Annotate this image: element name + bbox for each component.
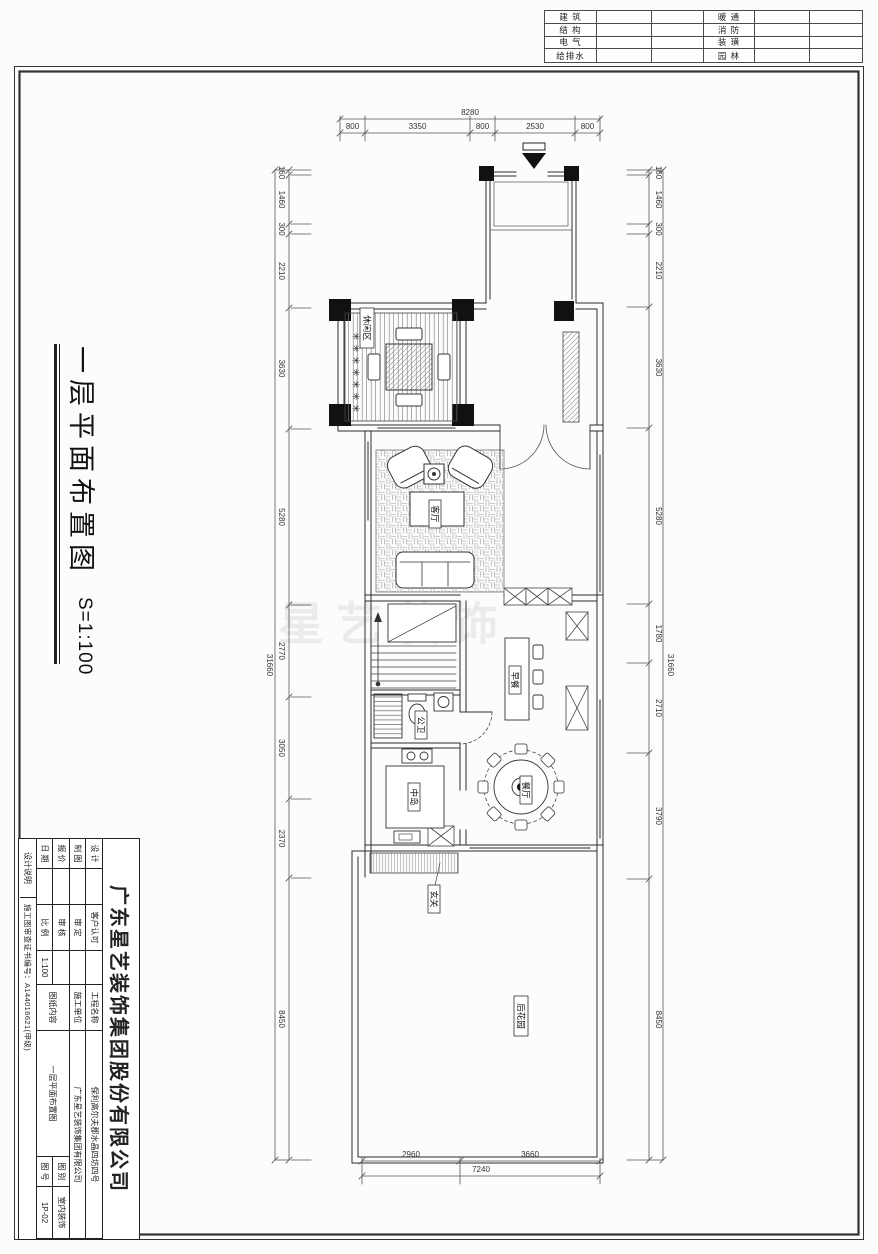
plant-symbols: ✳✳✳✳✳✳✳ bbox=[352, 332, 360, 415]
dim-label: 300 bbox=[654, 222, 663, 236]
plant-icon: ✳ bbox=[352, 380, 360, 391]
drawing-sheet: 建 筑 暖 通 结 构 消 防 电 气 装 璜 给排水 园 林 一层平面布置图 … bbox=[0, 0, 878, 1254]
stair-arrow-head bbox=[374, 612, 382, 622]
foyer-garden bbox=[370, 853, 458, 885]
dim-label: 800 bbox=[346, 122, 360, 131]
stone-wall-hatch bbox=[563, 332, 579, 422]
field-label-builder: 施工单位 bbox=[69, 985, 86, 1031]
field-value-scale: 1:100 bbox=[36, 951, 53, 985]
dimension-chain-bottom: 296036607240 bbox=[359, 1150, 603, 1184]
field-label-quote: 报 价 bbox=[53, 839, 70, 869]
field-label-approved: 审 定 bbox=[69, 905, 86, 951]
room-label-leisure: 休闲区 bbox=[362, 315, 372, 341]
powder-room bbox=[374, 693, 492, 744]
dim-label: 2770 bbox=[277, 642, 286, 660]
bar-stool bbox=[533, 695, 543, 709]
dim-label: 3790 bbox=[654, 807, 663, 825]
outdoor-chair bbox=[396, 394, 422, 406]
toilet-tank bbox=[408, 694, 426, 701]
field-value-date bbox=[36, 869, 53, 905]
dim-label: 7240 bbox=[472, 1165, 490, 1174]
bar-stool bbox=[533, 670, 543, 684]
field-label-date: 日 期 bbox=[36, 839, 53, 869]
dining-chair bbox=[515, 820, 527, 830]
field-label-checked: 审 核 bbox=[53, 905, 70, 951]
field-value-design bbox=[86, 869, 103, 905]
field-label-scale: 比 例 bbox=[36, 905, 53, 951]
cabinet bbox=[394, 831, 420, 843]
dim-label: 1460 bbox=[654, 191, 663, 209]
field-value-draft bbox=[69, 869, 86, 905]
entry-mat bbox=[370, 853, 458, 873]
bar-stool bbox=[533, 645, 543, 659]
french-door-arc bbox=[546, 425, 590, 469]
dim-label: 3630 bbox=[654, 359, 663, 377]
dim-label: 3050 bbox=[277, 739, 286, 757]
column bbox=[554, 301, 574, 321]
living-room bbox=[376, 425, 590, 592]
dim-label: 8450 bbox=[277, 1010, 286, 1028]
washer bbox=[374, 694, 402, 738]
cooktop bbox=[402, 749, 432, 763]
column bbox=[479, 166, 494, 181]
entry-marker-bar bbox=[523, 143, 545, 150]
dim-label: 800 bbox=[476, 122, 490, 131]
company-name: 广东星艺装饰集团股份有限公司 bbox=[102, 839, 139, 1239]
stair-treads bbox=[371, 646, 456, 688]
dim-label: 1780 bbox=[654, 625, 663, 643]
outdoor-table bbox=[386, 344, 432, 390]
field-value-project: 保利高尔夫郡水晶四坊四号 bbox=[86, 1031, 103, 1239]
dim-label: 160 bbox=[654, 166, 663, 180]
field-value-category: 室内装饰 bbox=[53, 1187, 70, 1239]
dim-label: 31660 bbox=[666, 654, 675, 677]
dim-label: 31660 bbox=[265, 654, 274, 677]
dim-label: 8280 bbox=[461, 108, 479, 117]
dim-label: 800 bbox=[581, 122, 595, 131]
dining-chair bbox=[554, 781, 564, 793]
plant-icon: ✳ bbox=[352, 392, 360, 403]
field-value-builder: 广东星艺装饰集团有限公司 bbox=[69, 1031, 86, 1239]
dim-label: 5280 bbox=[654, 507, 663, 525]
dining-chair bbox=[486, 752, 502, 768]
staircase bbox=[371, 604, 456, 688]
dim-label: 2370 bbox=[277, 830, 286, 848]
porch-inner-line bbox=[494, 182, 568, 226]
dim-label: 2210 bbox=[277, 262, 286, 280]
room-label-dining: 餐厅 bbox=[521, 781, 531, 799]
entry-arrow-icon bbox=[522, 153, 546, 169]
field-value-checked bbox=[53, 951, 70, 985]
dim-label: 160 bbox=[277, 166, 286, 180]
french-door-arc bbox=[500, 425, 544, 469]
room-label-island: 中岛 bbox=[409, 788, 419, 805]
stair-arrow-start bbox=[376, 682, 381, 687]
dim-label: 2960 bbox=[402, 1150, 420, 1159]
field-label-draft: 制 图 bbox=[69, 839, 86, 869]
field-value-content: 一层平面布置图 bbox=[36, 1031, 69, 1157]
dimension-chain-left: 1601460300221036305280277030502370845031… bbox=[265, 166, 311, 1163]
sink bbox=[434, 693, 453, 711]
dim-label: 3350 bbox=[409, 122, 427, 131]
room-label-foyer: 玄关 bbox=[429, 890, 439, 908]
plant-icon: ✳ bbox=[352, 332, 360, 343]
title-block: 广东星艺装饰集团股份有限公司 设 计 客户认可 工程名称 保利高尔夫郡水晶四坊四… bbox=[18, 838, 140, 1240]
plant-icon: ✳ bbox=[352, 404, 360, 415]
field-value-drawing-no: 1P-02 bbox=[36, 1187, 53, 1239]
design-notes-label: 设计说明 bbox=[20, 839, 36, 898]
certificate-number: 施工图审查证书编号：A144016621(甲级) bbox=[20, 898, 36, 1239]
dim-label: 8450 bbox=[654, 1011, 663, 1029]
field-value-approved bbox=[69, 951, 86, 985]
room-label-living: 客厅 bbox=[430, 505, 440, 523]
dimension-chain-right: 1601460300221036305280178027103790845031… bbox=[627, 166, 675, 1163]
field-label-category: 图 别 bbox=[53, 1157, 70, 1187]
room-label-garden: 后花园 bbox=[516, 1003, 526, 1029]
field-label-content: 图纸内容 bbox=[36, 985, 69, 1031]
dim-label: 2710 bbox=[654, 699, 663, 717]
entry-porch bbox=[490, 143, 572, 230]
field-value-quote bbox=[53, 869, 70, 905]
side-table-dot bbox=[433, 473, 436, 476]
title-block-fields: 设 计 客户认可 工程名称 保利高尔夫郡水晶四坊四号 制 图 审 定 施工单位 … bbox=[36, 839, 102, 1239]
dim-label: 300 bbox=[277, 222, 286, 236]
sofa bbox=[396, 552, 474, 588]
dim-label: 1460 bbox=[277, 191, 286, 209]
dining-chair bbox=[478, 781, 488, 793]
dim-label: 2210 bbox=[654, 262, 663, 280]
dim-label: 5280 bbox=[277, 508, 286, 526]
room-label-breakfast: 早餐 bbox=[510, 671, 520, 689]
plant-icon: ✳ bbox=[352, 368, 360, 379]
dining-chair bbox=[515, 744, 527, 754]
outdoor-chair bbox=[438, 354, 450, 380]
dining-chair bbox=[486, 806, 502, 822]
field-label-drawing-no: 图 号 bbox=[36, 1157, 53, 1187]
french-door-leaf bbox=[500, 425, 590, 469]
field-label-project: 工程名称 bbox=[86, 985, 103, 1031]
dim-label: 3660 bbox=[521, 1150, 539, 1159]
field-label-client: 客户认可 bbox=[86, 905, 103, 951]
plant-icon: ✳ bbox=[352, 344, 360, 355]
dining-chair bbox=[540, 806, 556, 822]
door-swing-arc bbox=[460, 712, 492, 744]
dim-label: 3630 bbox=[277, 360, 286, 378]
dim-label: 2530 bbox=[526, 122, 544, 131]
plant-icon: ✳ bbox=[352, 356, 360, 367]
room-label-powder: 公卫 bbox=[416, 716, 426, 734]
field-label-design: 设 计 bbox=[86, 839, 103, 869]
field-value-client bbox=[86, 951, 103, 985]
dining-chair bbox=[540, 752, 556, 768]
title-block-footer: 设计说明 施工图审查证书编号：A144016621(甲级) bbox=[20, 839, 36, 1239]
outdoor-chair bbox=[368, 354, 380, 380]
dimension-chain-top: 800335080025308008280 bbox=[337, 108, 603, 141]
column bbox=[564, 166, 579, 181]
outdoor-chair bbox=[396, 328, 422, 340]
